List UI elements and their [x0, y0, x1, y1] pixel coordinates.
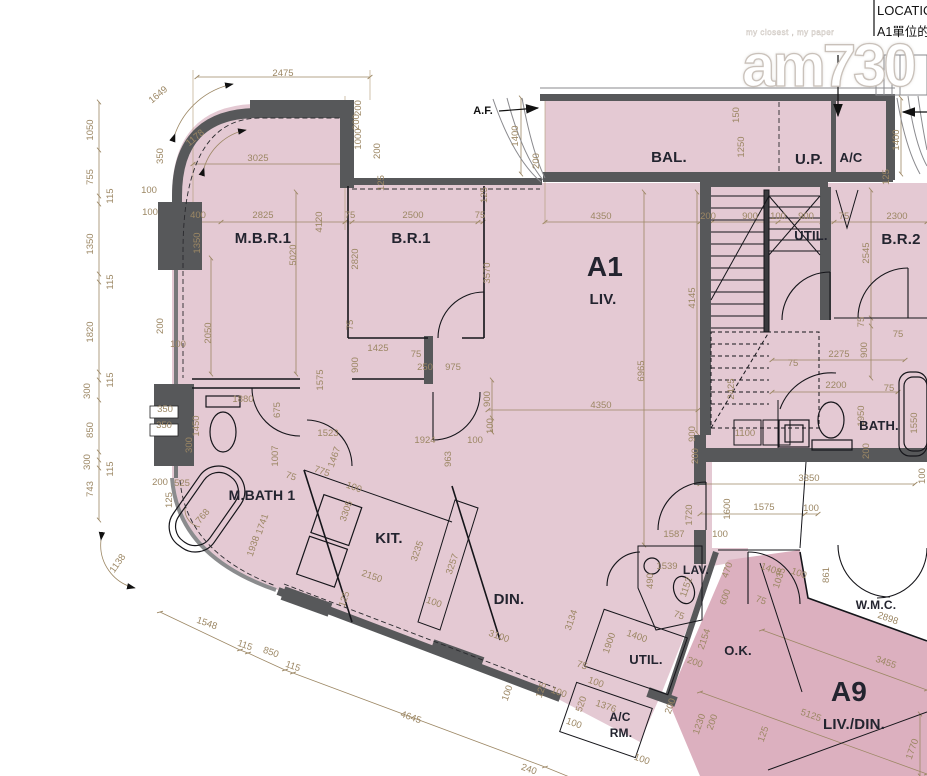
dim-label: 75: [839, 211, 850, 222]
dim-label: 200: [700, 211, 716, 222]
room-label-u-p-: U.P.: [795, 151, 823, 168]
dim-label: 200: [372, 143, 383, 159]
dim-label: 1000: [353, 128, 364, 149]
room-label-m-bath-1: M.BATH 1: [229, 487, 296, 503]
dim-label: 1600: [722, 498, 733, 519]
dim-label: 125: [376, 175, 387, 191]
dim-label: 4350: [590, 211, 611, 222]
room-label-b-r-1: B.R.1: [391, 230, 430, 247]
dim-label: 850: [262, 645, 281, 661]
dim-label: 115: [284, 659, 302, 674]
dim-label: 900: [687, 426, 698, 442]
room-label-util-: UTIL.: [794, 228, 828, 243]
dim-label: 100: [803, 503, 819, 514]
dim-label: 1720: [684, 504, 695, 525]
dim-label: 2825: [252, 210, 273, 221]
dim-label: 350: [157, 404, 173, 415]
dim-label: 75: [884, 383, 895, 394]
room-label-util-: UTIL.: [629, 652, 663, 667]
dim-label: 300: [82, 383, 93, 399]
dim-label: 100: [500, 684, 516, 703]
room-label-a1: A1: [587, 251, 623, 282]
dim-label: 3570: [482, 262, 493, 283]
dim-label: 2820: [350, 248, 361, 269]
dim-label: 3025: [247, 153, 268, 164]
dim-label: 100: [712, 529, 728, 540]
dim-label: 75: [893, 329, 904, 340]
dim-label: 900: [798, 211, 814, 222]
header-line2: A1單位的: [877, 21, 927, 40]
dim-label: 900: [482, 391, 493, 407]
dim-label: 115: [236, 638, 254, 653]
dim-label: 100: [770, 211, 786, 222]
dim-label: 200: [690, 448, 701, 464]
dim-label: 1100: [735, 428, 755, 439]
dim-label: 850: [85, 422, 96, 438]
dim-label: 2425: [726, 378, 737, 399]
floorplan-page: 2475164911783025350105075511513501151820…: [0, 0, 927, 776]
af-arrow: [499, 108, 538, 111]
dim-label: 150: [731, 107, 742, 123]
dim-label: 3350: [798, 473, 819, 484]
dim-label: 1880: [232, 394, 253, 405]
room-label-b-r-2: B.R.2: [881, 231, 920, 248]
dim-label: 75: [856, 317, 867, 328]
dim-label: 200: [152, 477, 168, 488]
dim-label: 1007: [270, 445, 281, 466]
dim-label: 861: [821, 567, 832, 583]
dim-label: 1587: [663, 529, 684, 540]
dim-label: 200: [861, 443, 872, 459]
dim-label: 125: [479, 187, 490, 203]
dim-label: 350: [156, 420, 172, 431]
dim-label: 200: [531, 153, 542, 169]
dim-label: 115: [105, 461, 116, 476]
dim-label: 75: [345, 210, 356, 221]
dim-label: 1350: [192, 232, 203, 253]
header-line1: LOCATIO: [877, 3, 927, 18]
dim-label: 100: [485, 418, 496, 434]
dim-label: 240: [520, 762, 539, 776]
room-label-din-: DIN.: [494, 591, 525, 608]
dim-label: 200: [351, 114, 362, 130]
dim-label: 4350: [590, 400, 611, 411]
dim-label: 100: [142, 207, 158, 218]
dim-label: 975: [445, 362, 461, 373]
af-annotation: A.F.: [473, 105, 493, 117]
dim-label: 100: [170, 339, 186, 350]
room-label-a9: A9: [831, 676, 867, 707]
dim-label: 75: [788, 358, 799, 369]
dim-label: 4145: [687, 287, 698, 308]
room-label-liv-din-: LIV./DIN.: [823, 716, 885, 733]
dim-label: 1820: [85, 321, 96, 342]
dim-label: 4120: [314, 211, 325, 232]
dim-label: 5020: [288, 244, 299, 265]
dim-label: 1400: [510, 125, 521, 146]
dim-label: 100: [141, 185, 157, 196]
dim-label: 1250: [736, 136, 747, 157]
dim-label: 1550: [909, 412, 920, 433]
dim-label: 900: [742, 211, 758, 222]
dim-label: 1450: [191, 415, 202, 436]
dim-label: 100: [633, 752, 652, 768]
room-label-bal-: BAL.: [651, 149, 687, 166]
floorplan-drawing: 2475164911783025350105075511513501151820…: [0, 0, 927, 776]
dim-label: 350: [155, 148, 166, 164]
room-label-kit-: KIT.: [375, 530, 402, 547]
room-label-w-m-c-: W.M.C.: [856, 598, 897, 612]
dim-label: 490: [645, 573, 656, 589]
dim-label: 1050: [85, 119, 96, 140]
room-label-a-c: A/C: [609, 710, 630, 724]
dim-label: 1649: [147, 84, 170, 106]
dim-label: 743: [85, 481, 96, 497]
dim-label: 1523: [317, 428, 338, 439]
room-label-bath-: BATH.: [859, 418, 899, 433]
dim-label: 2500: [402, 210, 423, 221]
dim-label: 75: [475, 210, 486, 221]
room-label-rm-: RM.: [610, 726, 633, 740]
room-label-o-k-: O.K.: [724, 643, 752, 658]
dim-label: 1350: [85, 233, 96, 254]
dim-label: 100: [565, 716, 584, 732]
dim-label: 6965: [636, 360, 647, 381]
dim-label: 963: [443, 451, 454, 467]
room-label-lav-: LAV.: [683, 563, 709, 577]
dim-label: 75: [345, 320, 356, 331]
dim-label: 525: [174, 478, 190, 489]
dim-label: 300: [184, 437, 195, 453]
dim-label: 2475: [272, 68, 293, 79]
dim-label: 900: [859, 342, 870, 358]
dim-label: 675: [272, 402, 283, 418]
annotation-labels: A.F.: [473, 105, 493, 117]
dim-label: 400: [190, 210, 206, 221]
dim-label: 75: [411, 349, 422, 360]
dim-label: 1539: [656, 561, 677, 572]
header-text: LOCATIO A1單位的: [877, 3, 927, 40]
dim-label: 4645: [399, 709, 423, 726]
dim-label: 300: [82, 454, 93, 470]
dim-label: 2545: [861, 242, 872, 263]
dim-label: 1400: [891, 129, 902, 150]
room-label-liv-: LIV.: [590, 291, 617, 308]
dim-label: 250: [417, 362, 433, 373]
dim-label: 1548: [195, 615, 219, 632]
dim-label: 1138: [108, 552, 129, 575]
dim-label: 1924: [414, 435, 435, 446]
dim-label: 115: [105, 372, 116, 387]
dim-label: 2300: [886, 211, 907, 222]
room-label-m-b-r-1: M.B.R.1: [235, 230, 291, 247]
dim-label: 1575: [315, 369, 326, 390]
dim-label: 2275: [828, 349, 849, 360]
dim-label: 100: [917, 468, 927, 484]
dim-label: 200: [155, 318, 166, 334]
dim-label: 200: [353, 100, 364, 116]
dim-label: 755: [85, 169, 96, 185]
dim-label: 1575: [753, 502, 774, 513]
dim-label: 115: [105, 188, 116, 203]
dim-label: 115: [105, 274, 116, 289]
dim-label: 2050: [203, 322, 214, 343]
dim-label: 125: [164, 492, 175, 508]
dim-label: 1425: [367, 343, 388, 354]
dim-label: 100: [467, 435, 483, 446]
dim-label: 2200: [825, 380, 846, 391]
dim-label: 125: [881, 169, 892, 185]
room-label-a-c: A/C: [840, 150, 863, 165]
dim-label: 900: [350, 357, 361, 373]
